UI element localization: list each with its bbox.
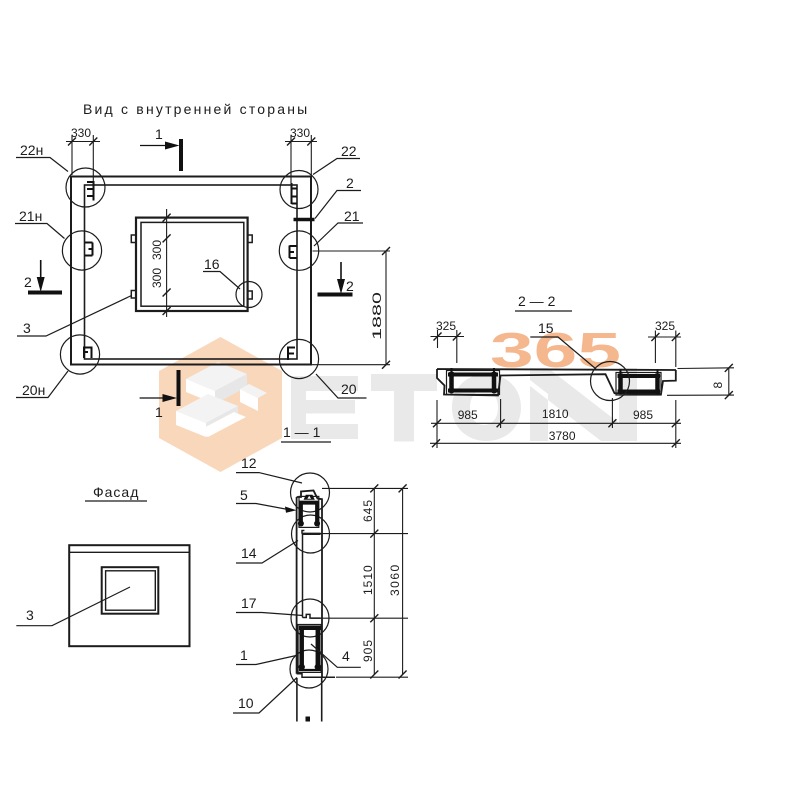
svg-text:17: 17 bbox=[241, 595, 257, 611]
svg-text:5: 5 bbox=[240, 487, 248, 503]
svg-text:4: 4 bbox=[342, 648, 350, 664]
svg-text:3: 3 bbox=[23, 320, 31, 336]
svg-text:21: 21 bbox=[344, 208, 360, 224]
svg-text:10: 10 bbox=[238, 695, 254, 711]
svg-text:16: 16 bbox=[204, 256, 220, 272]
svg-text:985: 985 bbox=[458, 408, 478, 422]
svg-text:12: 12 bbox=[241, 455, 257, 471]
svg-text:985: 985 bbox=[633, 408, 653, 422]
svg-text:330: 330 bbox=[71, 126, 91, 140]
svg-text:905: 905 bbox=[361, 639, 375, 662]
svg-text:3780: 3780 bbox=[549, 429, 576, 443]
svg-text:1 — 1: 1 — 1 bbox=[283, 424, 321, 440]
svg-text:1: 1 bbox=[155, 404, 163, 420]
svg-text:Фасад: Фасад bbox=[93, 484, 139, 500]
svg-text:300: 300 bbox=[150, 268, 164, 288]
svg-text:15: 15 bbox=[538, 320, 554, 336]
svg-text:21н: 21н bbox=[19, 208, 42, 224]
svg-text:325: 325 bbox=[655, 319, 675, 333]
svg-text:300: 300 bbox=[150, 240, 164, 260]
svg-text:20н: 20н bbox=[22, 382, 45, 398]
svg-text:2: 2 bbox=[346, 278, 354, 294]
svg-text:3060: 3060 bbox=[388, 563, 402, 596]
svg-text:1: 1 bbox=[240, 647, 248, 663]
svg-text:2: 2 bbox=[24, 274, 32, 290]
svg-text:2 — 2: 2 — 2 bbox=[518, 293, 556, 309]
svg-text:22: 22 bbox=[341, 143, 357, 159]
svg-text:8: 8 bbox=[711, 382, 725, 389]
svg-text:3: 3 bbox=[26, 607, 34, 623]
svg-text:330: 330 bbox=[290, 126, 310, 140]
svg-text:2: 2 bbox=[346, 175, 354, 191]
svg-text:1: 1 bbox=[155, 126, 163, 142]
svg-text:14: 14 bbox=[241, 545, 257, 561]
svg-text:22н: 22н bbox=[20, 142, 43, 158]
svg-text:325: 325 bbox=[436, 319, 456, 333]
svg-text:20: 20 bbox=[341, 381, 357, 397]
svg-text:1810: 1810 bbox=[542, 407, 569, 421]
svg-text:1510: 1510 bbox=[361, 564, 375, 595]
svg-text:1880: 1880 bbox=[370, 291, 384, 340]
svg-text:645: 645 bbox=[361, 499, 375, 522]
svg-text:Вид с внутренней стораны: Вид с внутренней стораны bbox=[83, 101, 309, 117]
